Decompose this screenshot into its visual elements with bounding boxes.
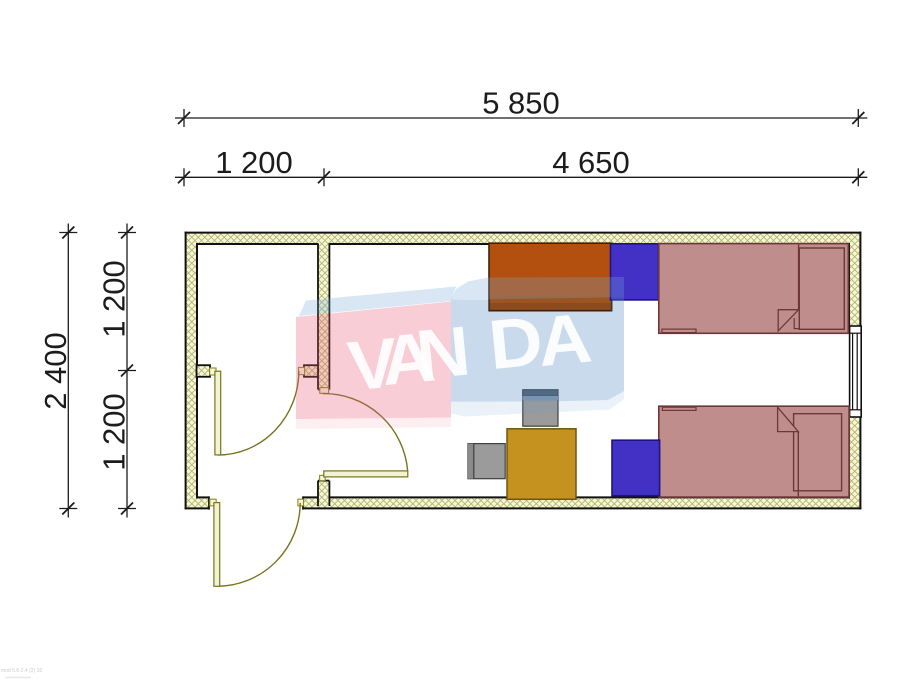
svg-text:A: A [534,299,595,381]
svg-text:1 200: 1 200 [97,260,132,338]
svg-text:4 650: 4 650 [552,145,630,180]
svg-text:1 200: 1 200 [97,393,132,471]
svg-text:mod 5.8-2.4 (2) 16: mod 5.8-2.4 (2) 16 [1,668,42,674]
svg-text:2 400: 2 400 [38,332,73,410]
svg-text:N: N [413,312,474,394]
svg-text:5 850: 5 850 [482,86,560,121]
svg-text:1 200: 1 200 [215,145,293,180]
